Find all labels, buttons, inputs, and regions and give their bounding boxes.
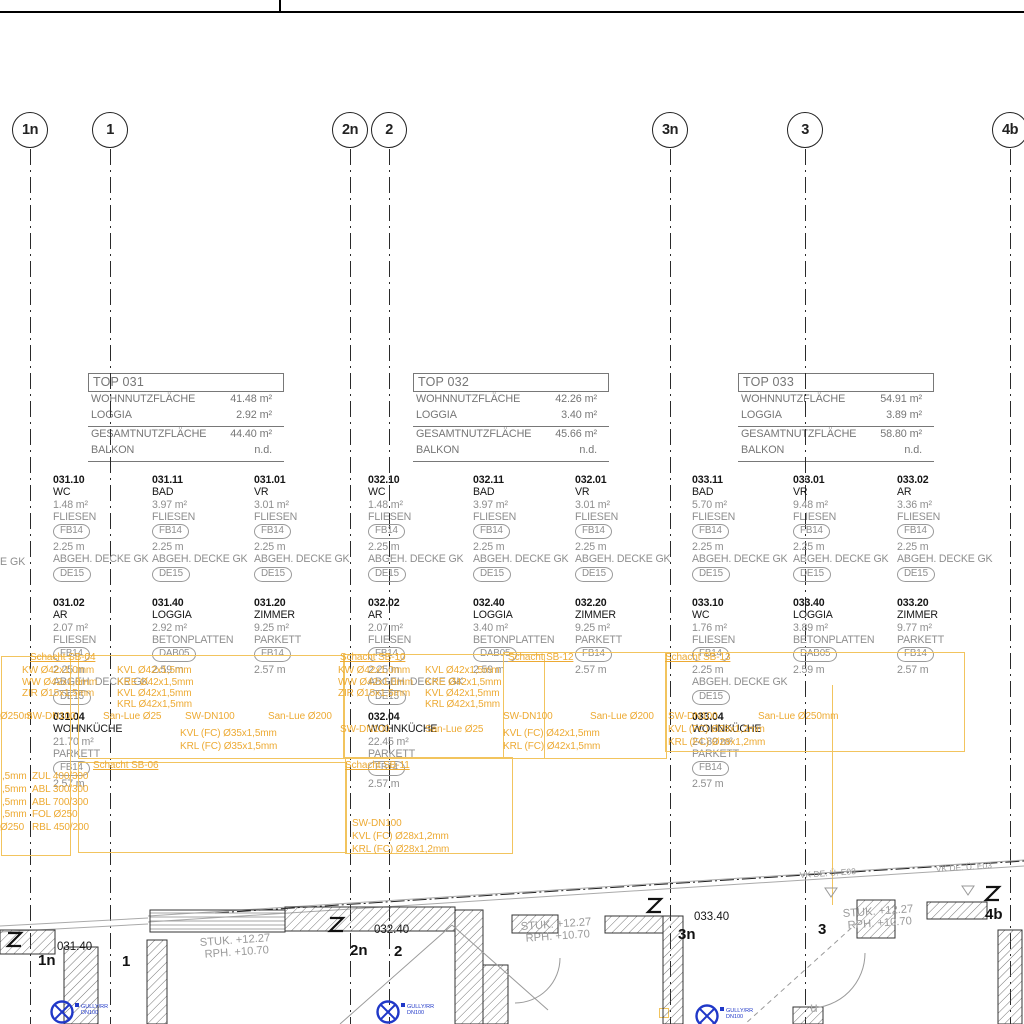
room-area: 2.07 m² xyxy=(368,622,480,634)
wall-hatch xyxy=(147,940,167,1024)
unit-table-title: TOP 031 xyxy=(88,373,284,392)
room-reference-label: 031.40 xyxy=(57,941,92,953)
plumbing-annotation-text: ,5mm xyxy=(2,809,27,820)
room-floor-material: FLIESEN xyxy=(897,511,1009,523)
room-info-block: 031.10 WC 1.48 m² FLIESEN FB14 2.25 m AB… xyxy=(53,474,165,584)
area-row-label: BALKON xyxy=(91,444,134,459)
floor-finish-tag: FB14 xyxy=(692,761,729,776)
plumbing-annotation-text: KVL (FC) Ø35x1,5mm xyxy=(180,728,277,739)
room-area: 1.48 m² xyxy=(368,499,480,511)
room-name: BAD xyxy=(152,486,264,498)
plumbing-annotation-text: SW-DN100 xyxy=(352,818,402,829)
room-clear-height: 2.25 m xyxy=(473,541,585,553)
room-number: 031.01 xyxy=(254,474,366,486)
grid-axis-bubble: 1 xyxy=(92,112,128,148)
room-name: ZIMMER xyxy=(897,609,1009,621)
room-name: VR xyxy=(793,486,905,498)
room-number: 032.40 xyxy=(473,597,585,609)
table-separator xyxy=(413,461,609,462)
room-name: LOGGIA xyxy=(473,609,585,621)
room-name: LOGGIA xyxy=(793,609,905,621)
room-name: AR xyxy=(53,609,165,621)
wall-hatch xyxy=(483,965,508,1024)
grid-axis-label: 3n xyxy=(678,926,696,943)
unit-table-title: TOP 033 xyxy=(738,373,934,392)
floor-drain-icon: GULLY/RRDN100 xyxy=(697,1006,754,1024)
plumbing-annotation-text: KVL Ø42x1,5mm xyxy=(425,688,499,699)
room-name: VR xyxy=(254,486,366,498)
room-name: AR xyxy=(368,609,480,621)
room-name: BAD xyxy=(473,486,585,498)
area-row-label: GESAMTNUTZFLÄCHE xyxy=(416,428,531,443)
plumbing-annotation-text: SW-DN100 xyxy=(26,711,76,722)
shaft-label: Schacht SB-04 xyxy=(30,652,95,663)
ceiling-tag: DE15 xyxy=(53,567,91,582)
room-area: 2.07 m² xyxy=(53,622,165,634)
room-floor-material: BETONPLATTEN xyxy=(152,634,264,646)
ceiling-tag: DE15 xyxy=(692,567,730,582)
title-block-divider xyxy=(279,0,281,11)
plumbing-annotation-text: SW-DN100 xyxy=(185,711,235,722)
room-ceiling: ABGEH. DECKE GK xyxy=(368,553,480,565)
grid-axis-label: 3 xyxy=(818,921,826,938)
plumbing-annotation-text: San-Lue Ø250mm xyxy=(758,711,838,722)
room-number: 032.10 xyxy=(368,474,480,486)
room-info-block: 032.01 VR 3.01 m² FLIESEN FB14 2.25 m AB… xyxy=(575,474,687,584)
room-info-block: 032.11 BAD 3.97 m² FLIESEN FB14 2.25 m A… xyxy=(473,474,585,584)
room-area: 2.92 m² xyxy=(152,622,264,634)
room-name: ZIMMER xyxy=(254,609,366,621)
floor-finish-tag: FB14 xyxy=(53,524,90,539)
wall-hatch xyxy=(455,910,483,1024)
room-floor-material: BETONPLATTEN xyxy=(473,634,585,646)
door-swing-arc xyxy=(810,953,865,1008)
room-number: 033.40 xyxy=(793,597,905,609)
room-area: 5.70 m² xyxy=(692,499,804,511)
room-clear-height: 2.25 m xyxy=(897,541,1009,553)
area-row-value: 58.80 m² xyxy=(880,428,922,443)
drain-label: DN100 xyxy=(81,1010,98,1016)
room-ceiling: ABGEH. DECKE GK xyxy=(152,553,264,565)
shaft-label: Schacht SB-11 xyxy=(345,760,410,771)
room-info-block: 031.01 VR 3.01 m² FLIESEN FB14 2.25 m AB… xyxy=(254,474,366,584)
area-row-label: WOHNNUTZFLÄCHE xyxy=(741,393,845,408)
room-area: 3.40 m² xyxy=(473,622,585,634)
plumbing-annotation-text: KRL (FC) Ø42x1,5mm xyxy=(503,741,600,752)
room-number: 031.02 xyxy=(53,597,165,609)
room-area: 3.01 m² xyxy=(254,499,366,511)
room-name: WC xyxy=(692,609,804,621)
room-number: 032.20 xyxy=(575,597,687,609)
area-row-label: LOGGIA xyxy=(741,409,782,424)
drain-label: DN100 xyxy=(726,1014,743,1020)
room-name: ZIMMER xyxy=(575,609,687,621)
ceiling-tag: DE15 xyxy=(897,567,935,582)
room-clear-height: 2.25 m xyxy=(53,541,165,553)
room-floor-material: PARKETT xyxy=(575,634,687,646)
wall-layers xyxy=(150,910,285,932)
plumbing-annotation-text: ,5mm xyxy=(2,771,27,782)
room-number: 031.11 xyxy=(152,474,264,486)
room-info-block: 032.10 WC 1.48 m² FLIESEN FB14 2.25 m AB… xyxy=(368,474,480,584)
edge-annotation-label: VK DE. Ü. E03 xyxy=(935,860,992,874)
title-block-bottom-rule xyxy=(0,11,1024,13)
plumbing-annotation-text: ,5mm xyxy=(2,797,27,808)
ceiling-tag: DE15 xyxy=(254,567,292,582)
drain-label: DN100 xyxy=(407,1010,424,1016)
room-ceiling: ABGEH. DECKE GK xyxy=(254,553,366,565)
plumbing-annotation-text: KVL Ø42x1,5mm xyxy=(117,665,191,676)
grid-axis-bubble: 3 xyxy=(787,112,823,148)
plumbing-annotation-text: ,5mm xyxy=(2,784,27,795)
plumbing-annotation-text: San-Lue Ø200 xyxy=(268,711,332,722)
room-floor-material: FLIESEN xyxy=(473,511,585,523)
room-reference-label: 033.40 xyxy=(694,911,729,923)
area-row-label: WOHNNUTZFLÄCHE xyxy=(91,393,195,408)
grid-axis-label: 2n xyxy=(350,942,368,959)
room-clear-height: 2.25 m xyxy=(575,541,687,553)
plumbing-annotation-text: KVL (FC) Ø28x1,2mm xyxy=(352,831,449,842)
floor-finish-tag: FB14 xyxy=(152,524,189,539)
room-floor-material: FLIESEN xyxy=(692,634,804,646)
area-row-value: 3.40 m² xyxy=(561,409,597,424)
plumbing-annotation-text: WW Ø42x1,0mm xyxy=(22,677,97,688)
room-clear-height: 2.25 m xyxy=(793,541,905,553)
room-number: 033.01 xyxy=(793,474,905,486)
room-area: 9.25 m² xyxy=(575,622,687,634)
room-ceiling: ABGEH. DECKE GK xyxy=(473,553,585,565)
room-info-block: 033.01 VR 9.48 m² FLIESEN FB14 2.25 m AB… xyxy=(793,474,905,584)
plumbing-annotation-text: San-Lue Ø25 xyxy=(103,711,161,722)
ceiling-tag: DE15 xyxy=(575,567,613,582)
plumbing-annotation-text: KRL (FC) Ø35x1,5mm xyxy=(180,741,277,752)
room-name: WC xyxy=(368,486,480,498)
grid-axis-bubble: 2n xyxy=(332,112,368,148)
grid-axis-bubble: 1n xyxy=(12,112,48,148)
unit-table-title: TOP 032 xyxy=(413,373,609,392)
room-number: 032.01 xyxy=(575,474,687,486)
shaft-label: Schacht SB-13 xyxy=(665,652,730,663)
floor-finish-tag: FB14 xyxy=(254,524,291,539)
table-separator xyxy=(88,461,284,462)
plumbing-annotation-text: KRL Ø42x1,5mm xyxy=(117,699,192,710)
plumbing-annotation-text: KRE Ø42x1,5mm xyxy=(117,677,194,688)
room-area: 3.01 m² xyxy=(575,499,687,511)
area-row-value: 41.48 m² xyxy=(230,393,272,408)
room-floor-material: BETONPLATTEN xyxy=(793,634,905,646)
area-row-value: n.d. xyxy=(904,444,922,459)
plumbing-annotation-text: KW Ø42x1,0mm xyxy=(338,665,410,676)
level-marker-icon xyxy=(962,886,974,895)
room-info-block: 033.02 AR 3.36 m² FLIESEN FB14 2.25 m AB… xyxy=(897,474,1009,584)
wall-hatch xyxy=(927,902,987,919)
floor-drain-icon: GULLY/RRDN100 xyxy=(378,1002,435,1023)
room-floor-material: FLIESEN xyxy=(368,634,480,646)
plumbing-annotation-text: KVL Ø42x1,5mm xyxy=(425,665,499,676)
plumbing-annotation-text: San-Lue Ø200 xyxy=(590,711,654,722)
room-area: 9.25 m² xyxy=(254,622,366,634)
room-ceiling: ABGEH. DECKE GK xyxy=(692,553,804,565)
plumbing-annotation-text: SW-DN100 xyxy=(503,711,553,722)
wall-hatch xyxy=(605,916,663,933)
floor-finish-tag: FB14 xyxy=(368,524,405,539)
misc-plan-label: u xyxy=(810,999,818,1015)
room-info-block: 031.11 BAD 3.97 m² FLIESEN FB14 2.25 m A… xyxy=(152,474,264,584)
section-mark-icon xyxy=(648,899,661,912)
plumbing-annotation-text: Ø250 xyxy=(0,822,24,833)
floor-finish-tag: FB14 xyxy=(473,524,510,539)
room-name: VR xyxy=(575,486,687,498)
area-row-value: 2.92 m² xyxy=(236,409,272,424)
room-number: 031.40 xyxy=(152,597,264,609)
floor-finish-tag: FB14 xyxy=(575,524,612,539)
room-area: 3.97 m² xyxy=(152,499,264,511)
room-floor-material: FLIESEN xyxy=(575,511,687,523)
room-floor-material: FLIESEN xyxy=(793,511,905,523)
plumbing-annotation-text: RBL 450/200 xyxy=(32,822,89,833)
room-ceiling: ABGEH. DECKE GK xyxy=(53,553,165,565)
grid-axis-label: 1 xyxy=(122,953,130,970)
room-name: BAD xyxy=(692,486,804,498)
section-plan: GULLY/RRDN100GULLY/RRDN100GULLY/RRDN100S… xyxy=(0,858,1024,1024)
ceiling-tag: DE15 xyxy=(793,567,831,582)
area-row-label: LOGGIA xyxy=(416,409,457,424)
area-row-label: GESAMTNUTZFLÄCHE xyxy=(741,428,856,443)
plumbing-annotation-text: KVL Ø42x1,5mm xyxy=(117,688,191,699)
unit-area-table: TOP 031 WOHNNUTZFLÄCHE41.48 m² LOGGIA2.9… xyxy=(88,373,284,462)
plumbing-annotation-text: KRL (FC) Ø28x1,2mm xyxy=(352,844,449,855)
room-number: 032.11 xyxy=(473,474,585,486)
room-floor-material: FLIESEN xyxy=(53,634,165,646)
plumbing-annotation-text: ABL 300/300 xyxy=(32,784,88,795)
shaft-label: Schacht SB-06 xyxy=(93,760,158,771)
room-floor-material: FLIESEN xyxy=(692,511,804,523)
plumbing-annotation-box xyxy=(78,762,347,853)
room-area: 9.77 m² xyxy=(897,622,1009,634)
table-separator xyxy=(738,461,934,462)
ceiling-tag: DE15 xyxy=(473,567,511,582)
room-name: WC xyxy=(53,486,165,498)
door-swing-arc xyxy=(515,958,560,1003)
room-ceiling: ABGEH. DECKE GK xyxy=(575,553,687,565)
room-number: 033.11 xyxy=(692,474,804,486)
area-row-value: 45.66 m² xyxy=(555,428,597,443)
room-clear-height: 2.25 m xyxy=(254,541,366,553)
plumbing-annotation-text: FOL Ø250 xyxy=(32,809,78,820)
plumbing-annotation-text: ABL 700/300 xyxy=(32,797,88,808)
wall-hatch xyxy=(793,1007,823,1024)
room-number: 033.10 xyxy=(692,597,804,609)
room-area: 1.76 m² xyxy=(692,622,804,634)
floor-finish-tag: FB14 xyxy=(793,524,830,539)
room-reference-label: 032.40 xyxy=(374,924,409,936)
area-row-label: WOHNNUTZFLÄCHE xyxy=(416,393,520,408)
room-floor-material: FLIESEN xyxy=(254,511,366,523)
room-area: 3.36 m² xyxy=(897,499,1009,511)
room-info-block: 033.11 BAD 5.70 m² FLIESEN FB14 2.25 m A… xyxy=(692,474,804,584)
area-row-value: 42.26 m² xyxy=(555,393,597,408)
room-floor-material: FLIESEN xyxy=(53,511,165,523)
wall-hatch xyxy=(998,930,1022,1024)
room-ceiling: ABGEH. DECKE GK xyxy=(897,553,1009,565)
room-clear-height: 2.25 m xyxy=(152,541,264,553)
area-row-label: BALKON xyxy=(741,444,784,459)
area-row-value: n.d. xyxy=(254,444,272,459)
grid-axis-bubble: 4b xyxy=(992,112,1024,148)
grid-axis-label: 1n xyxy=(38,952,56,969)
slope-diagonal xyxy=(340,925,452,1024)
room-ceiling: ABGEH. DECKE GK xyxy=(793,553,905,565)
room-area: 1.48 m² xyxy=(53,499,165,511)
room-name: AR xyxy=(897,486,1009,498)
shaft-label: Schacht SB-12 xyxy=(508,652,573,663)
level-marker-icon xyxy=(825,888,837,897)
floorplan-sheet: { "colors":{"annotation":"#edaa33","anno… xyxy=(0,0,1024,1024)
room-name: LOGGIA xyxy=(152,609,264,621)
room-clear-height: 2.25 m xyxy=(368,541,480,553)
plumbing-annotation-text: KRL Ø42x1,5mm xyxy=(425,699,500,710)
ceiling-tag: DE15 xyxy=(152,567,190,582)
room-floor-material: FLIESEN xyxy=(368,511,480,523)
plumbing-annotation-text: KRE Ø42x1,5mm xyxy=(425,677,502,688)
room-area: 3.89 m² xyxy=(793,622,905,634)
area-row-label: LOGGIA xyxy=(91,409,132,424)
unit-area-table: TOP 033 WOHNNUTZFLÄCHE54.91 m² LOGGIA3.8… xyxy=(738,373,934,462)
plumbing-annotation-text: KVL (FC) Ø28x1,2mm xyxy=(668,724,765,735)
area-row-value: 54.91 m² xyxy=(880,393,922,408)
grid-axis-label: 4b xyxy=(985,906,1003,923)
room-floor-material: PARKETT xyxy=(254,634,366,646)
room-clear-height: 2.57 m xyxy=(692,778,804,790)
room-clear-height: 2.25 m xyxy=(692,541,804,553)
area-row-value: 44.40 m² xyxy=(230,428,272,443)
room-number: 031.20 xyxy=(254,597,366,609)
room-area: 3.97 m² xyxy=(473,499,585,511)
room-number: 033.20 xyxy=(897,597,1009,609)
ceiling-tag: DE15 xyxy=(368,567,406,582)
clipped-room-text-fragment: E GK xyxy=(0,556,25,568)
plumbing-annotation-text: KVL (FC) Ø42x1,5mm xyxy=(503,728,600,739)
unit-area-table: TOP 032 WOHNNUTZFLÄCHE42.26 m² LOGGIA3.4… xyxy=(413,373,609,462)
grid-axis-label: 2 xyxy=(394,943,402,960)
area-row-value: n.d. xyxy=(579,444,597,459)
shaft-label: Schacht SB-10 xyxy=(340,652,405,663)
area-row-label: BALKON xyxy=(416,444,459,459)
room-number: 032.02 xyxy=(368,597,480,609)
room-number: 033.02 xyxy=(897,474,1009,486)
area-row-label: GESAMTNUTZFLÄCHE xyxy=(91,428,206,443)
plumbing-annotation-text: KRL (FC) Ø28x1,2mm xyxy=(668,737,765,748)
plumbing-annotation-text: SW-DN100 xyxy=(668,711,718,722)
area-row-value: 3.89 m² xyxy=(886,409,922,424)
wall-hatch xyxy=(285,907,455,931)
grid-axis-bubble: 2 xyxy=(371,112,407,148)
plumbing-annotation-text: KW Ø42x1,0mm xyxy=(22,665,94,676)
room-number: 031.10 xyxy=(53,474,165,486)
floor-finish-tag: FB14 xyxy=(692,524,729,539)
plumbing-annotation-text: ZUL 400/300 xyxy=(32,771,88,782)
floor-finish-tag: FB14 xyxy=(897,524,934,539)
plumbing-annotation-text: ZIR Ø15x1,5mm xyxy=(22,688,94,699)
room-floor-material: PARKETT xyxy=(897,634,1009,646)
edge-annotation-label: VK DE. Ü. E03 xyxy=(799,866,856,880)
plumbing-annotation-text: SW-DN100 xyxy=(340,724,390,735)
room-area: 9.48 m² xyxy=(793,499,905,511)
plumbing-annotation-text: WW Ø42x1,0mm xyxy=(338,677,413,688)
section-mark-icon xyxy=(986,887,999,900)
plumbing-annotation-text: ZIR Ø15x1,5mm xyxy=(338,688,410,699)
room-floor-material: FLIESEN xyxy=(152,511,264,523)
plumbing-annotation-text: San-Lue Ø25 xyxy=(425,724,483,735)
grid-axis-bubble: 3n xyxy=(652,112,688,148)
